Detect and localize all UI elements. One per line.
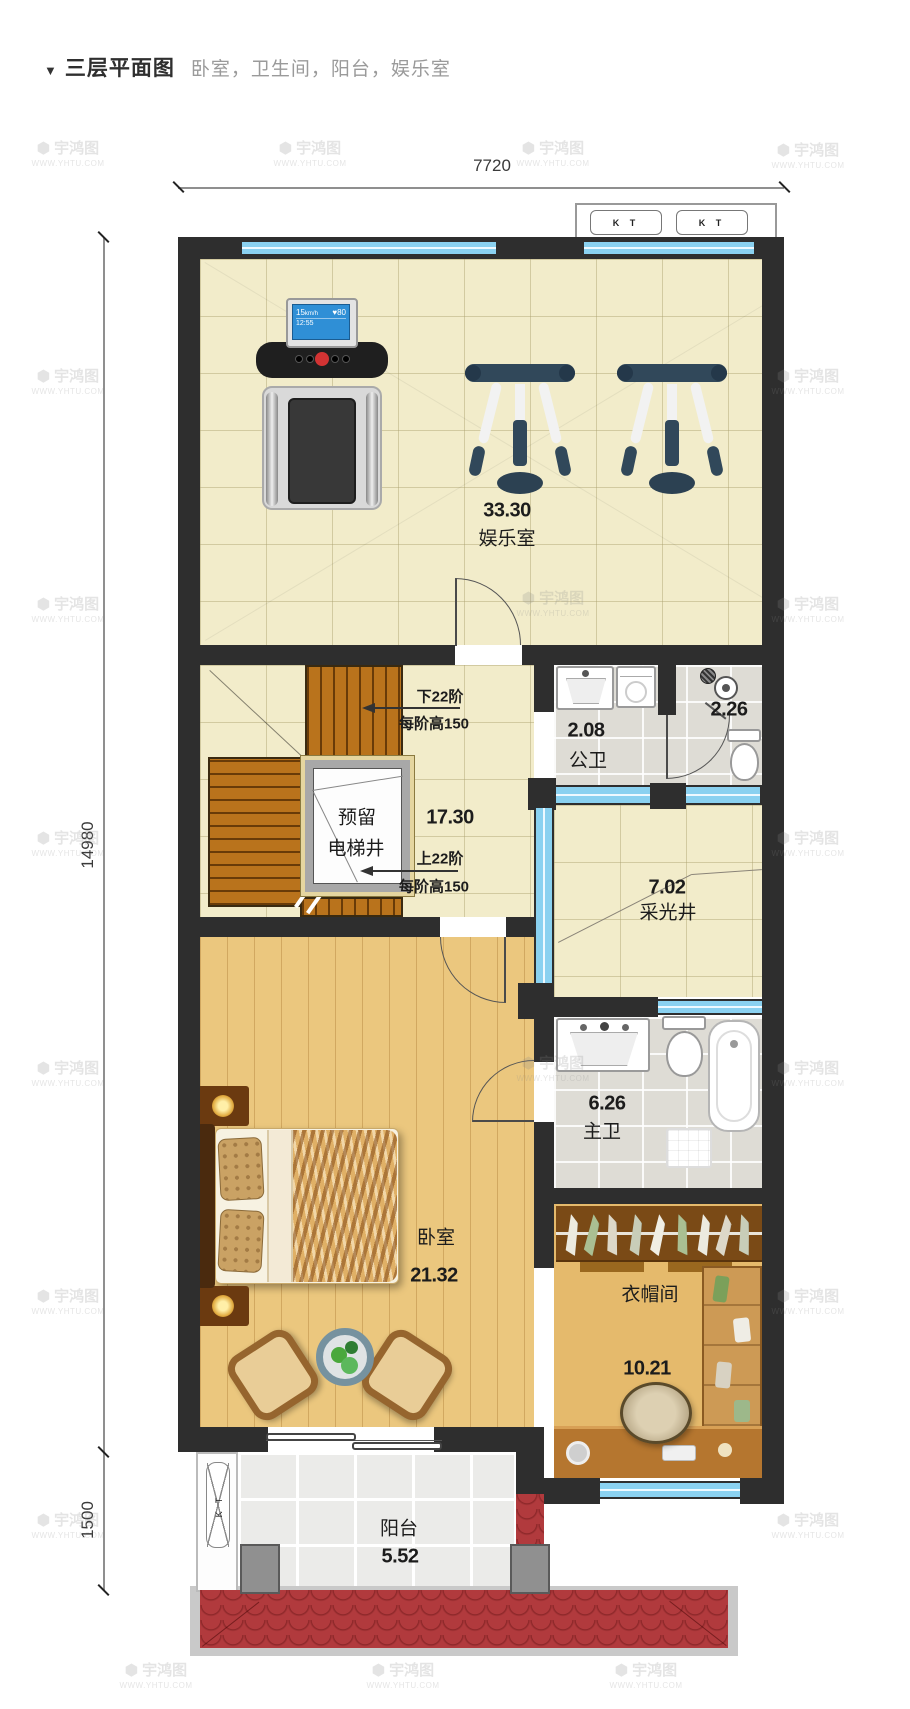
watermark-brand: 宇鸿图 (296, 140, 341, 157)
hanging-garment (734, 1213, 752, 1256)
ac-unit: K T (676, 210, 748, 235)
wall-pier (650, 783, 686, 809)
watermark-brand: 宇鸿图 (794, 830, 839, 847)
hanging-garment (671, 1213, 690, 1256)
treadmill-button (295, 355, 303, 363)
watermark-brand: 宇鸿图 (794, 1288, 839, 1305)
ac-unit-label: K T (214, 1495, 224, 1518)
faucet-handle (580, 1024, 587, 1031)
watermark-logo-icon: ⬢ (37, 368, 50, 385)
watermark-url: WWW.YHTU.COM (760, 161, 856, 171)
treadmill-screen: 15km/h ♥80 12:55 (292, 304, 350, 340)
stairs-up-arrow-line (372, 870, 458, 872)
treadmill-display: 15km/h ♥80 12:55 (286, 298, 358, 348)
watermark-logo-icon: ⬢ (37, 1288, 50, 1305)
blanket-fold (267, 1130, 293, 1282)
floor-plan-page: ▼ 三层平面图 卧室，卫生间，阳台，娱乐室 7720 14980 1500 K … (0, 0, 910, 1709)
wall-divider-b (534, 1122, 554, 1268)
balcony-pillar (240, 1544, 280, 1594)
master-bathroom-area: 6.26 (589, 1093, 626, 1116)
page-title: ▼ 三层平面图 卧室，卫生间，阳台，娱乐室 (44, 52, 451, 82)
closet-rod-section (556, 1206, 762, 1262)
gym-machine-pad (706, 445, 724, 477)
cloakroom-area: 10.21 (623, 1358, 671, 1381)
treadmill-rail (366, 392, 378, 506)
watermark-logo-icon: ⬢ (372, 1662, 385, 1679)
ac-unit-label: K T (613, 218, 640, 228)
wall-bedroom-bottom-left (178, 1427, 268, 1452)
gym-machine-arm (478, 382, 503, 445)
treadmill-heart: ♥80 (332, 307, 346, 318)
public-bathroom-name: 公卫 (569, 746, 607, 773)
toilet-bowl (666, 1031, 703, 1077)
watermark: ⬢ 宇鸿图WWW.YHTU.COM (598, 1662, 694, 1691)
treadmill-unit: km/h (305, 311, 318, 317)
gym-machine-pad (620, 445, 638, 477)
dimension-height-main: 14980 (78, 821, 98, 868)
sink-basin (570, 1032, 638, 1066)
watermark-logo-icon: ⬢ (777, 142, 790, 159)
stairs-up-rise: 每阶高150 (399, 876, 469, 897)
roof-tiles (200, 1590, 728, 1648)
watermark-brand: 宇鸿图 (632, 1662, 677, 1679)
sink (556, 666, 614, 710)
gym-machine-column (665, 420, 679, 466)
hanging-garment (713, 1213, 733, 1257)
watermark-url: WWW.YHTU.COM (20, 1531, 116, 1541)
gym-machine-seat (497, 472, 543, 494)
watermark-brand: 宇鸿图 (389, 1662, 434, 1679)
elevator-label-line2: 电梯井 (327, 834, 384, 861)
stair-flight-top (305, 665, 403, 757)
watermark: ⬢ 宇鸿图WWW.YHTU.COM (20, 368, 116, 397)
watermark-logo-icon: ⬢ (279, 140, 292, 157)
side-table (316, 1328, 374, 1386)
closet-shelf (580, 1262, 644, 1272)
dimension-line-left-main (103, 237, 105, 1452)
watermark-logo-icon: ⬢ (37, 1060, 50, 1077)
hanging-garment (564, 1214, 578, 1256)
stored-garment (733, 1317, 751, 1343)
bedroom-area: 21.32 (410, 1265, 458, 1288)
shower-room-area: 2.26 (711, 699, 748, 722)
treadmill-speed: 15 (296, 308, 305, 317)
gym-machine-arm (630, 382, 655, 445)
wall-cloakroom-bottom-right (740, 1478, 784, 1504)
gym-machine-cap (711, 365, 727, 381)
washer-door (625, 681, 647, 703)
watermark-url: WWW.YHTU.COM (20, 1307, 116, 1317)
sink (556, 1018, 650, 1072)
lamp-icon (212, 1295, 234, 1317)
plant-icon (345, 1341, 358, 1354)
watermark: ⬢ 宇鸿图WWW.YHTU.COM (262, 140, 358, 169)
light-well-glass-west (534, 806, 554, 985)
wall-divider-a (534, 1019, 554, 1062)
treadmill-button (331, 355, 339, 363)
watermark-brand: 宇鸿图 (539, 140, 584, 157)
watermark-url: WWW.YHTU.COM (20, 387, 116, 397)
wall-bedroom-top-right (506, 917, 534, 937)
stairs-down-arrow-line (374, 707, 460, 709)
wall-masterbath-top (518, 997, 658, 1017)
gym-machine-pad (554, 445, 572, 477)
hanging-garment (581, 1213, 600, 1256)
blanket (293, 1130, 397, 1282)
treadmill-belt (288, 398, 356, 504)
dimension-width: 7720 (473, 156, 511, 176)
watermark: ⬢ 宇鸿图WWW.YHTU.COM (355, 1662, 451, 1691)
pillow (217, 1209, 264, 1273)
stored-garment (715, 1361, 732, 1388)
watermark-brand: 宇鸿图 (794, 142, 839, 159)
mirror-icon (566, 1441, 590, 1465)
watermark-brand: 宇鸿图 (54, 368, 99, 385)
window-top-left (240, 240, 498, 256)
sliding-door-panel (352, 1442, 442, 1450)
watermark: ⬢ 宇鸿图WWW.YHTU.COM (20, 596, 116, 625)
watermark-url: WWW.YHTU.COM (20, 615, 116, 625)
watermark-url: WWW.YHTU.COM (108, 1681, 204, 1691)
watermark: ⬢ 宇鸿图WWW.YHTU.COM (108, 1662, 204, 1691)
stored-garment (734, 1400, 750, 1422)
wall-cloakroom-bottom-left (544, 1478, 600, 1504)
light-well-glass-top-left (554, 785, 652, 805)
dimension-height-balcony: 1500 (78, 1501, 98, 1539)
watermark: ⬢ 宇鸿图WWW.YHTU.COM (505, 140, 601, 169)
light-well-area: 7.02 (649, 877, 686, 900)
watermark-logo-icon: ⬢ (777, 1512, 790, 1529)
washer-panel-line (620, 676, 652, 677)
treadmill-rail (266, 392, 278, 506)
wall-bedroom-top-left (178, 917, 440, 937)
washing-machine (616, 666, 656, 708)
wall-right (762, 237, 784, 1504)
watermark-url: WWW.YHTU.COM (355, 1681, 451, 1691)
stairs-down-rise: 每阶高150 (399, 713, 469, 734)
watermark-logo-icon: ⬢ (615, 1662, 628, 1679)
ac-unit: K T (590, 210, 662, 235)
elevator-label-line1: 预留 (338, 803, 376, 830)
watermark: ⬢ 宇鸿图WWW.YHTU.COM (20, 830, 116, 859)
gym-machine-arm (690, 382, 715, 445)
ac-unit-label: K T (699, 218, 726, 228)
faucet-icon (600, 1022, 609, 1031)
dimension-line-left-balcony (103, 1452, 105, 1590)
bedroom-name: 卧室 (417, 1223, 455, 1250)
balcony-pillar (510, 1544, 550, 1594)
cosmetics-jar (718, 1443, 732, 1457)
bath-mat (666, 1128, 712, 1168)
stairs-up-steps: 上22阶 (417, 848, 464, 869)
wall-pubbath-west (534, 665, 554, 712)
public-bathroom-area: 2.08 (568, 720, 605, 743)
gym-machine-cap (617, 365, 633, 381)
treadmill-button (306, 355, 314, 363)
gym-machine-column (513, 420, 527, 466)
faucet-icon (582, 670, 589, 677)
entertainment-name: 娱乐室 (478, 524, 535, 551)
hanging-garment (696, 1214, 710, 1256)
watermark: ⬢ 宇鸿图WWW.YHTU.COM (20, 1060, 116, 1089)
wall-bath-divider (658, 665, 676, 715)
watermark-url: WWW.YHTU.COM (20, 159, 116, 169)
watermark: ⬢ 宇鸿图WWW.YHTU.COM (20, 1512, 116, 1541)
watermark: ⬢ 宇鸿图WWW.YHTU.COM (760, 142, 856, 171)
gym-machine-seat (649, 472, 695, 494)
watermark: ⬢ 宇鸿图WWW.YHTU.COM (20, 1288, 116, 1317)
window-top-right (582, 240, 756, 256)
sink-basin (566, 678, 606, 704)
bathtub (708, 1020, 760, 1132)
watermark-brand: 宇鸿图 (54, 1060, 99, 1077)
watermark-brand: 宇鸿图 (794, 1060, 839, 1077)
stored-garment (712, 1275, 729, 1303)
wall-left (178, 237, 200, 1452)
gym-machine (465, 360, 575, 506)
watermark-logo-icon: ⬢ (37, 1512, 50, 1529)
watermark-brand: 宇鸿图 (794, 596, 839, 613)
balcony-name: 阳台 (380, 1514, 418, 1541)
stairs-down-steps: 下22阶 (417, 686, 464, 707)
triangle-marker-icon: ▼ (44, 63, 57, 78)
watermark-url: WWW.YHTU.COM (20, 1079, 116, 1089)
cosmetics-tray (662, 1445, 696, 1461)
watermark-url: WWW.YHTU.COM (760, 1531, 856, 1541)
watermark-brand: 宇鸿图 (142, 1662, 187, 1679)
plan-subtitle: 卧室，卫生间，阳台，娱乐室 (191, 54, 451, 81)
watermark-brand: 宇鸿图 (794, 1512, 839, 1529)
wall-balcony-corner (516, 1452, 544, 1494)
ac-unit: K T (206, 1462, 230, 1548)
watermark-brand: 宇鸿图 (54, 140, 99, 157)
cloakroom-name: 衣帽间 (621, 1280, 678, 1307)
window-cloakroom-bottom (598, 1481, 742, 1499)
window-masterbath (656, 999, 764, 1015)
treadmill-time: 12:55 (296, 318, 346, 329)
toilet-tank (727, 729, 761, 742)
watermark: ⬢ 宇鸿图WWW.YHTU.COM (20, 140, 116, 169)
wall-mid-right (522, 645, 784, 665)
watermark-logo-icon: ⬢ (125, 1662, 138, 1679)
watermark-logo-icon: ⬢ (522, 140, 535, 157)
watermark-url: WWW.YHTU.COM (598, 1681, 694, 1691)
bathtub-drain (730, 1040, 738, 1048)
plant-icon (341, 1357, 358, 1374)
gym-machine (617, 360, 727, 506)
hanging-garment (602, 1213, 620, 1256)
hanging-garment (648, 1213, 666, 1256)
stair-flight-left (208, 757, 302, 907)
light-well-name: 采光井 (639, 898, 696, 925)
watermark-brand: 宇鸿图 (54, 596, 99, 613)
gym-machine-cap (465, 365, 481, 381)
wardrobe (702, 1266, 762, 1428)
hanging-garment (628, 1214, 642, 1256)
pillow (217, 1137, 264, 1201)
gym-machine-pad (468, 445, 486, 477)
master-bathroom-name: 主卫 (583, 1117, 621, 1144)
treadmill-stop-button (315, 352, 329, 366)
dimension-line-top (178, 187, 784, 189)
watermark: ⬢ 宇鸿图WWW.YHTU.COM (760, 1512, 856, 1541)
gym-machine-cap (559, 365, 575, 381)
wall-mid-left (178, 645, 455, 665)
shower-nozzle (722, 684, 730, 692)
watermark-url: WWW.YHTU.COM (20, 849, 116, 859)
toilet-bowl (730, 743, 759, 781)
watermark-url: WWW.YHTU.COM (262, 159, 358, 169)
wall-cloakroom-top (554, 1188, 784, 1204)
watermark-brand: 宇鸿图 (54, 1288, 99, 1305)
balcony-area: 5.52 (382, 1546, 419, 1569)
plan-title: 三层平面图 (65, 52, 175, 82)
watermark-logo-icon: ⬢ (37, 596, 50, 613)
light-well-glass-top-right (684, 785, 762, 805)
lamp-icon (212, 1095, 234, 1117)
watermark-brand: 宇鸿图 (794, 368, 839, 385)
faucet-handle (622, 1024, 629, 1031)
stool (620, 1382, 692, 1444)
treadmill-button (342, 355, 350, 363)
watermark-logo-icon: ⬢ (37, 140, 50, 157)
stair-hall-area: 17.30 (426, 807, 474, 830)
floor-drain-icon (700, 668, 716, 684)
entertainment-area: 33.30 (483, 500, 531, 523)
watermark-logo-icon: ⬢ (37, 830, 50, 847)
watermark-url: WWW.YHTU.COM (505, 159, 601, 169)
gym-machine-arm (538, 382, 563, 445)
toilet-tank (662, 1016, 706, 1030)
wall-bedroom-bottom-right (434, 1427, 544, 1452)
sliding-door-panel (266, 1433, 356, 1441)
